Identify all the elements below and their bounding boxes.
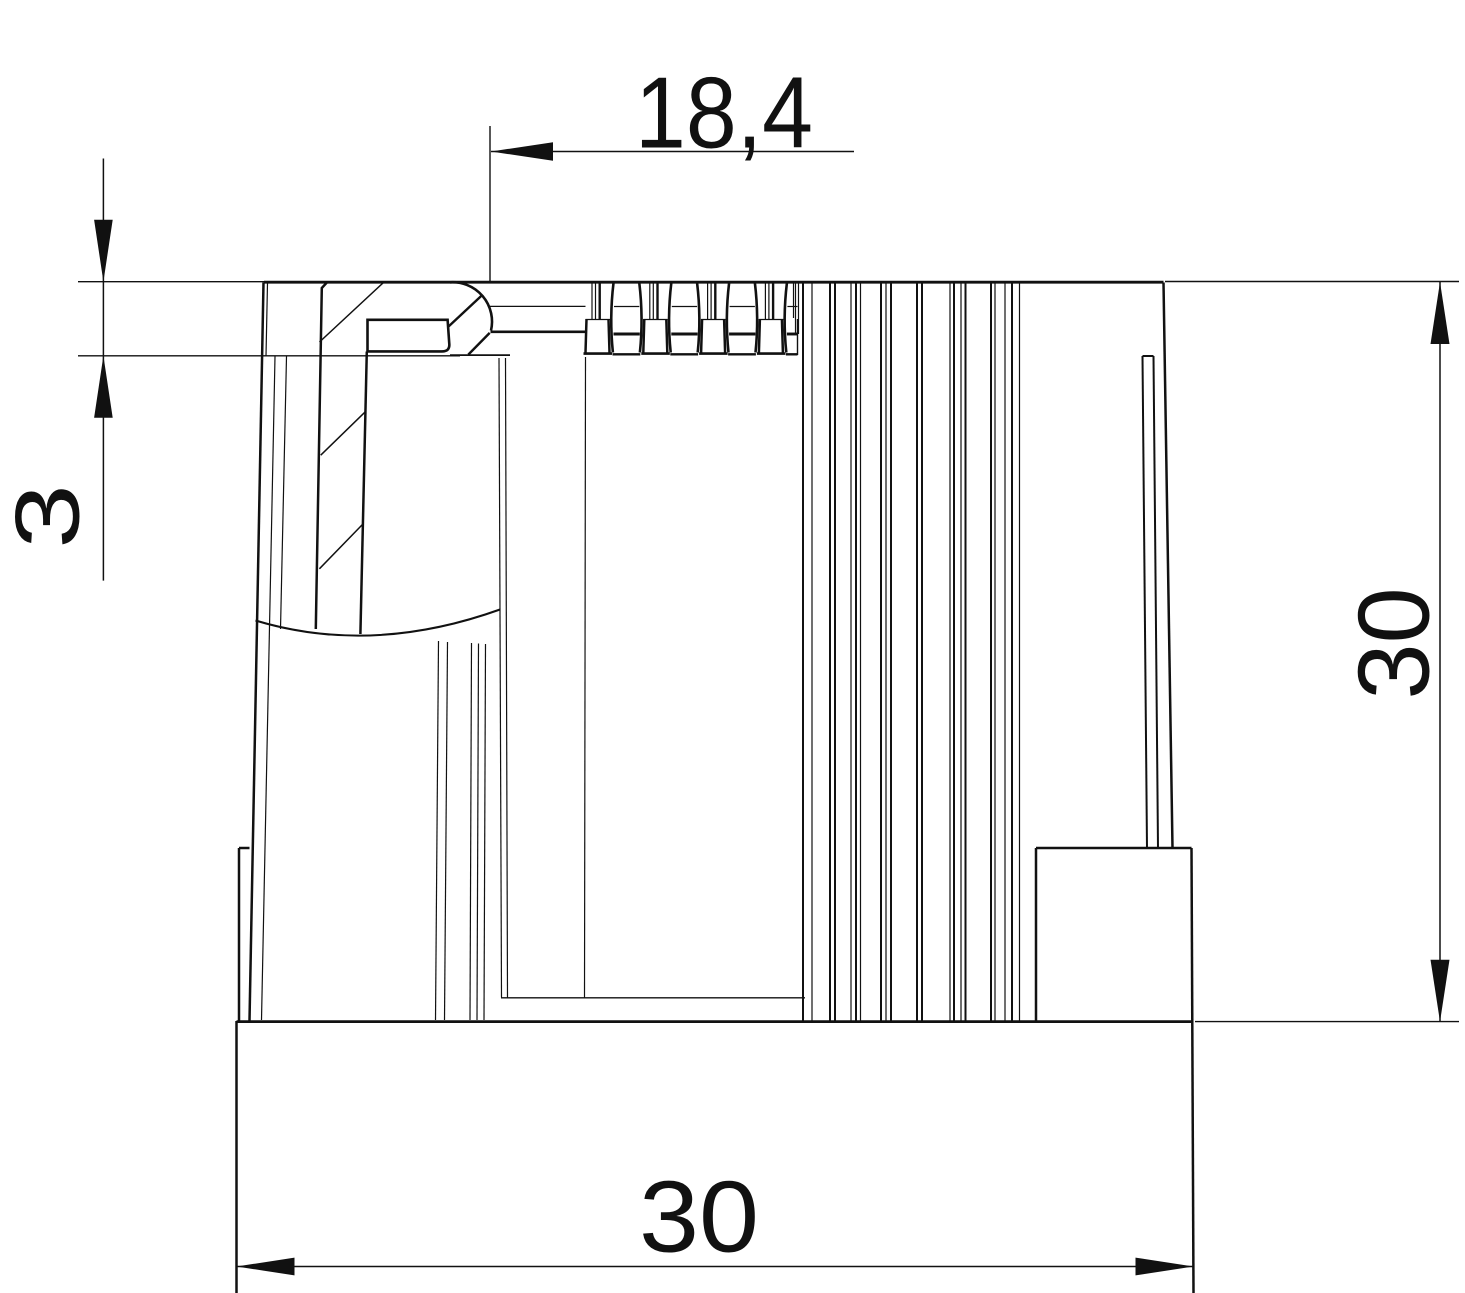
svg-text:18,4: 18,4 — [635, 58, 813, 170]
svg-text:3: 3 — [0, 484, 99, 549]
svg-text:30: 30 — [1339, 587, 1451, 699]
svg-text:30: 30 — [639, 1162, 759, 1274]
